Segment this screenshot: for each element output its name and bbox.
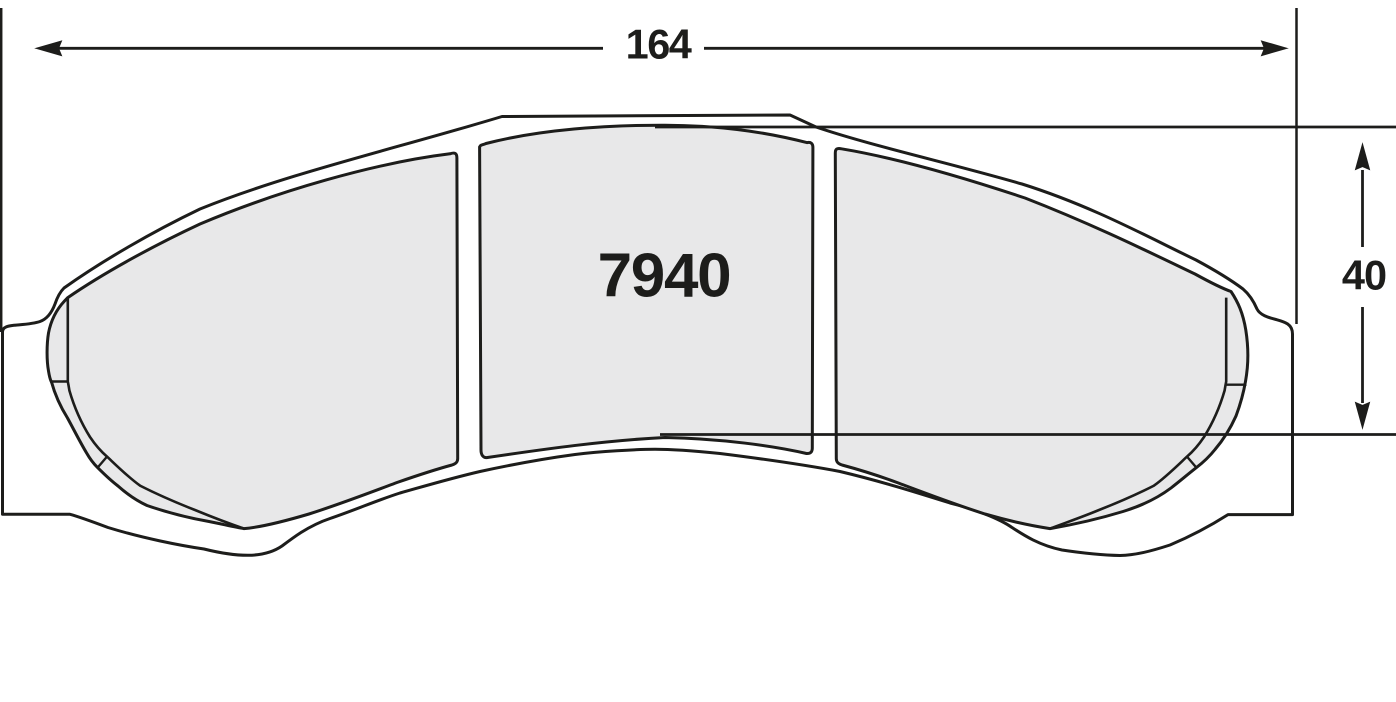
svg-text:7940: 7940 [598,241,731,310]
svg-text:164: 164 [626,20,692,67]
svg-text:40: 40 [1342,252,1386,299]
